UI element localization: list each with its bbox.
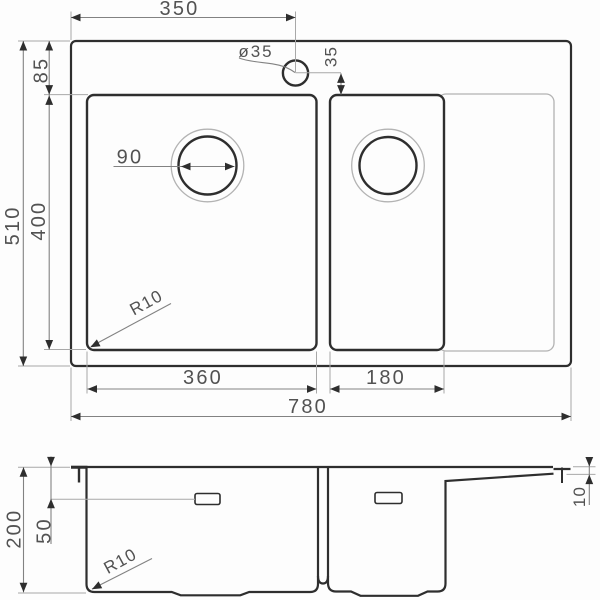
svg-text:10: 10 [570,486,589,507]
svg-text:360: 360 [183,367,223,389]
svg-text:180: 180 [366,367,406,389]
svg-text:350: 350 [160,0,200,20]
svg-text:90: 90 [117,147,144,169]
svg-text:510: 510 [2,205,24,245]
svg-text:85: 85 [31,57,53,84]
svg-text:200: 200 [4,509,26,549]
svg-text:35: 35 [322,46,341,67]
svg-text:50: 50 [34,517,56,544]
svg-text:400: 400 [28,201,50,241]
svg-text:ø35: ø35 [238,42,273,61]
svg-text:780: 780 [288,396,328,418]
